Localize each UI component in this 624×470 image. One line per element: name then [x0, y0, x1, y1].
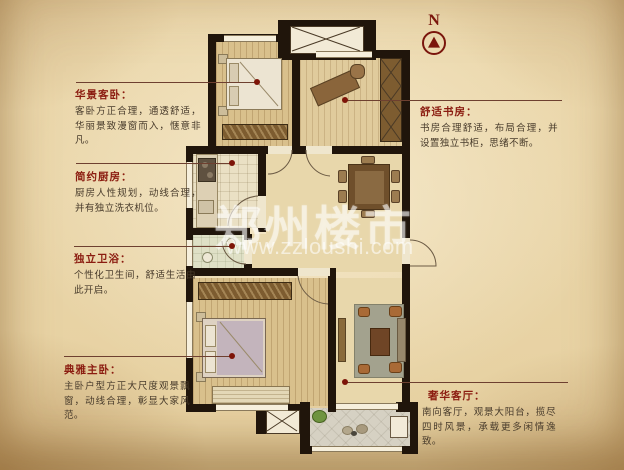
pillow: [205, 325, 216, 347]
armchair: [389, 306, 402, 317]
annotation-body: 客卧方正合理，通透舒适，华丽景致漫窗而入，惬意非凡。: [75, 105, 201, 149]
annotation-title: 简约厨房：: [75, 169, 201, 184]
compass-north-label: N: [420, 13, 448, 29]
annotation-title: 典雅主卧：: [64, 362, 190, 377]
plant: [312, 410, 327, 423]
bay-window-seat: [212, 386, 290, 404]
pillow: [205, 351, 216, 373]
watermark-url: www.zzloushi.com: [226, 234, 414, 260]
compass-north-icon: [422, 31, 446, 55]
armchair: [358, 307, 370, 317]
annotation-study: 舒适书房： 书房合理舒适，布局合理，并设置独立书柜，思绪不断。: [420, 104, 558, 151]
annotation-bathroom: 独立卫浴： 个性化卫生间，舒适生活由此开启。: [74, 251, 196, 298]
annotation-title: 独立卫浴：: [74, 251, 196, 266]
wall: [186, 404, 216, 412]
annotation-title: 华景客卧：: [75, 87, 201, 102]
annotation-title: 舒适书房：: [420, 104, 558, 119]
wall: [402, 446, 418, 454]
window: [186, 302, 193, 358]
sofa: [397, 318, 406, 362]
wardrobe: [198, 282, 292, 300]
annotation-master-bedroom: 典雅主卧： 主卧户型方正大尺度观景飘窗，动线合理，彰显大家风范。: [64, 362, 190, 424]
armchair: [358, 364, 370, 374]
floorplan-poster: 郑州楼市 www.zzloushi.com 华景客卧： 客卧方正合理，通透舒适，…: [0, 0, 624, 470]
wall: [208, 34, 216, 154]
pillow: [229, 63, 239, 83]
leader-line-guest-bedroom: [76, 82, 257, 83]
annotation-title: 奢华客厅：: [422, 388, 556, 403]
chair: [350, 64, 365, 79]
window-to-balcony: [336, 403, 398, 410]
window: [224, 35, 276, 42]
pillow: [229, 86, 239, 106]
chair: [361, 156, 375, 164]
annotation-guest-bedroom: 华景客卧： 客卧方正合理，通透舒适，华丽景致漫窗而入，惬意非凡。: [75, 87, 201, 149]
marker-dot-bathroom: [229, 243, 235, 249]
annotation-body: 厨房人性规划，动线合理，并有独立洗衣机位。: [75, 187, 201, 216]
armchair: [389, 362, 402, 373]
leader-line-bathroom: [74, 246, 232, 247]
compass: N: [420, 13, 448, 55]
marker-dot-master-bedroom: [229, 353, 235, 359]
window: [316, 51, 372, 58]
compass-needle: [428, 37, 440, 48]
marker-dot-guest-bedroom: [254, 79, 260, 85]
tv-cabinet: [338, 318, 346, 362]
leader-line-kitchen: [76, 163, 232, 164]
coffee-table: [370, 328, 390, 356]
chair: [338, 170, 347, 183]
annotation-kitchen: 简约厨房： 厨房人性规划，动线合理，并有独立洗衣机位。: [75, 169, 201, 216]
shaft-box: [290, 26, 364, 54]
marker-dot-kitchen: [229, 160, 235, 166]
door-opening: [268, 146, 292, 154]
wall: [396, 402, 410, 412]
wall: [300, 446, 312, 454]
balcony-railing: [312, 446, 402, 452]
shaft-box: [266, 410, 300, 434]
annotation-living-room: 奢华客厅： 南向客厅，观景大阳台，揽尽四时风景，承载更多闲情逸致。: [422, 388, 556, 450]
stone: [351, 431, 357, 436]
burner: [207, 172, 213, 178]
leader-line-master-bedroom: [64, 356, 232, 357]
door-opening: [298, 268, 330, 276]
annotation-body: 个性化卫生间，舒适生活由此开启。: [74, 269, 196, 298]
blanket: [217, 321, 263, 375]
chair: [391, 170, 400, 183]
wall: [328, 276, 336, 412]
marker-dot-living-room: [342, 379, 348, 385]
wardrobe: [222, 124, 288, 140]
door-opening: [306, 146, 332, 154]
annotation-body: 书房合理舒适，布局合理，并设置独立书柜，思绪不断。: [420, 122, 558, 151]
toilet: [202, 252, 213, 263]
bed: [202, 318, 266, 378]
annotation-body: 南向客厅，观景大阳台，揽尽四时风景，承载更多闲情逸致。: [422, 406, 556, 450]
bay-window-line: [216, 404, 288, 411]
leader-line-study: [345, 100, 562, 101]
marker-dot-study: [342, 97, 348, 103]
washing-machine: [390, 416, 408, 438]
annotation-body: 主卧户型方正大尺度观景飘窗，动线合理，彰显大家风范。: [64, 380, 190, 424]
stone: [356, 424, 368, 434]
leader-line-living-room: [345, 382, 568, 383]
